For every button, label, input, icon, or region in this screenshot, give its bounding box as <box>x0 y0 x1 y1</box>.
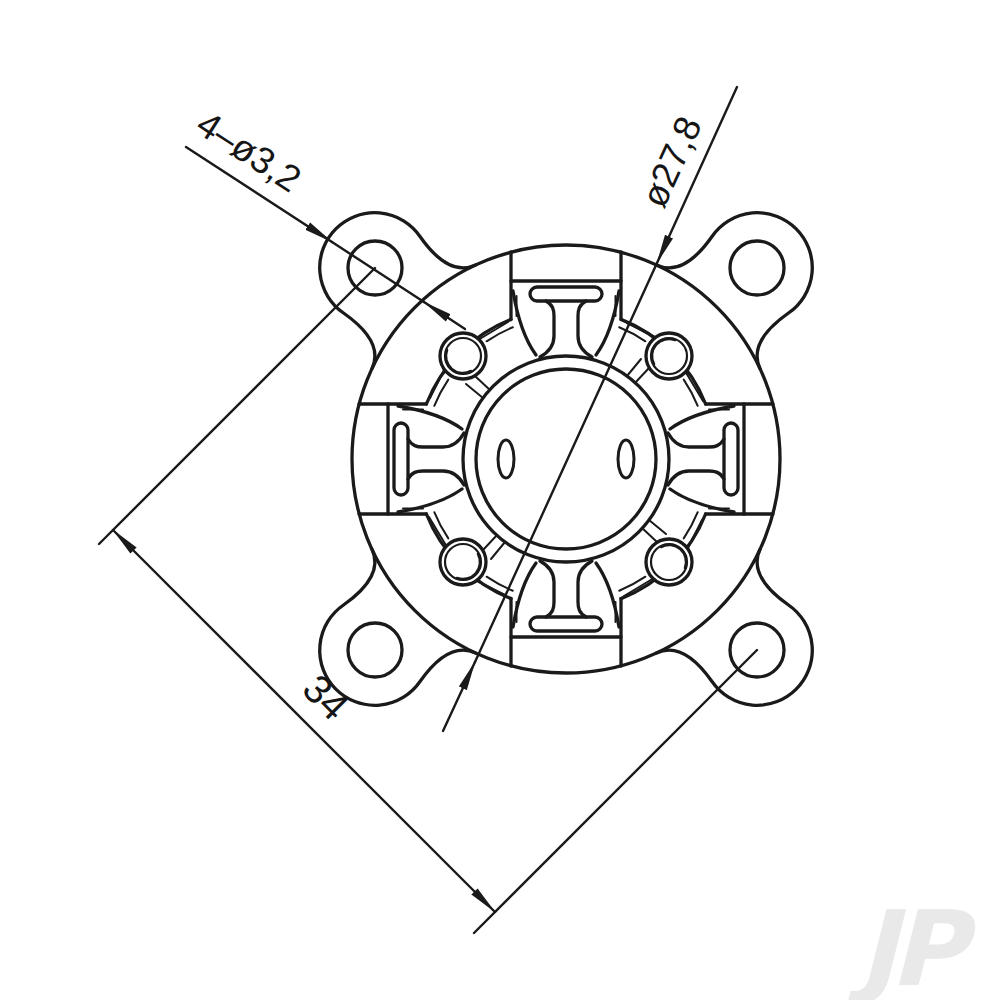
motor-flange-drawing: 4–ø3,2 ø27,8 34 JP <box>0 0 1000 1000</box>
hub <box>463 356 669 562</box>
technical-drawing-canvas: 4–ø3,2 ø27,8 34 JP <box>0 0 1000 1000</box>
watermark-text: JP <box>846 888 977 1000</box>
outer-diameter-label: ø27,8 <box>633 110 710 213</box>
mount-holes-label: 4–ø3,2 <box>189 103 308 200</box>
hole-spacing-label: 34 <box>295 666 358 729</box>
